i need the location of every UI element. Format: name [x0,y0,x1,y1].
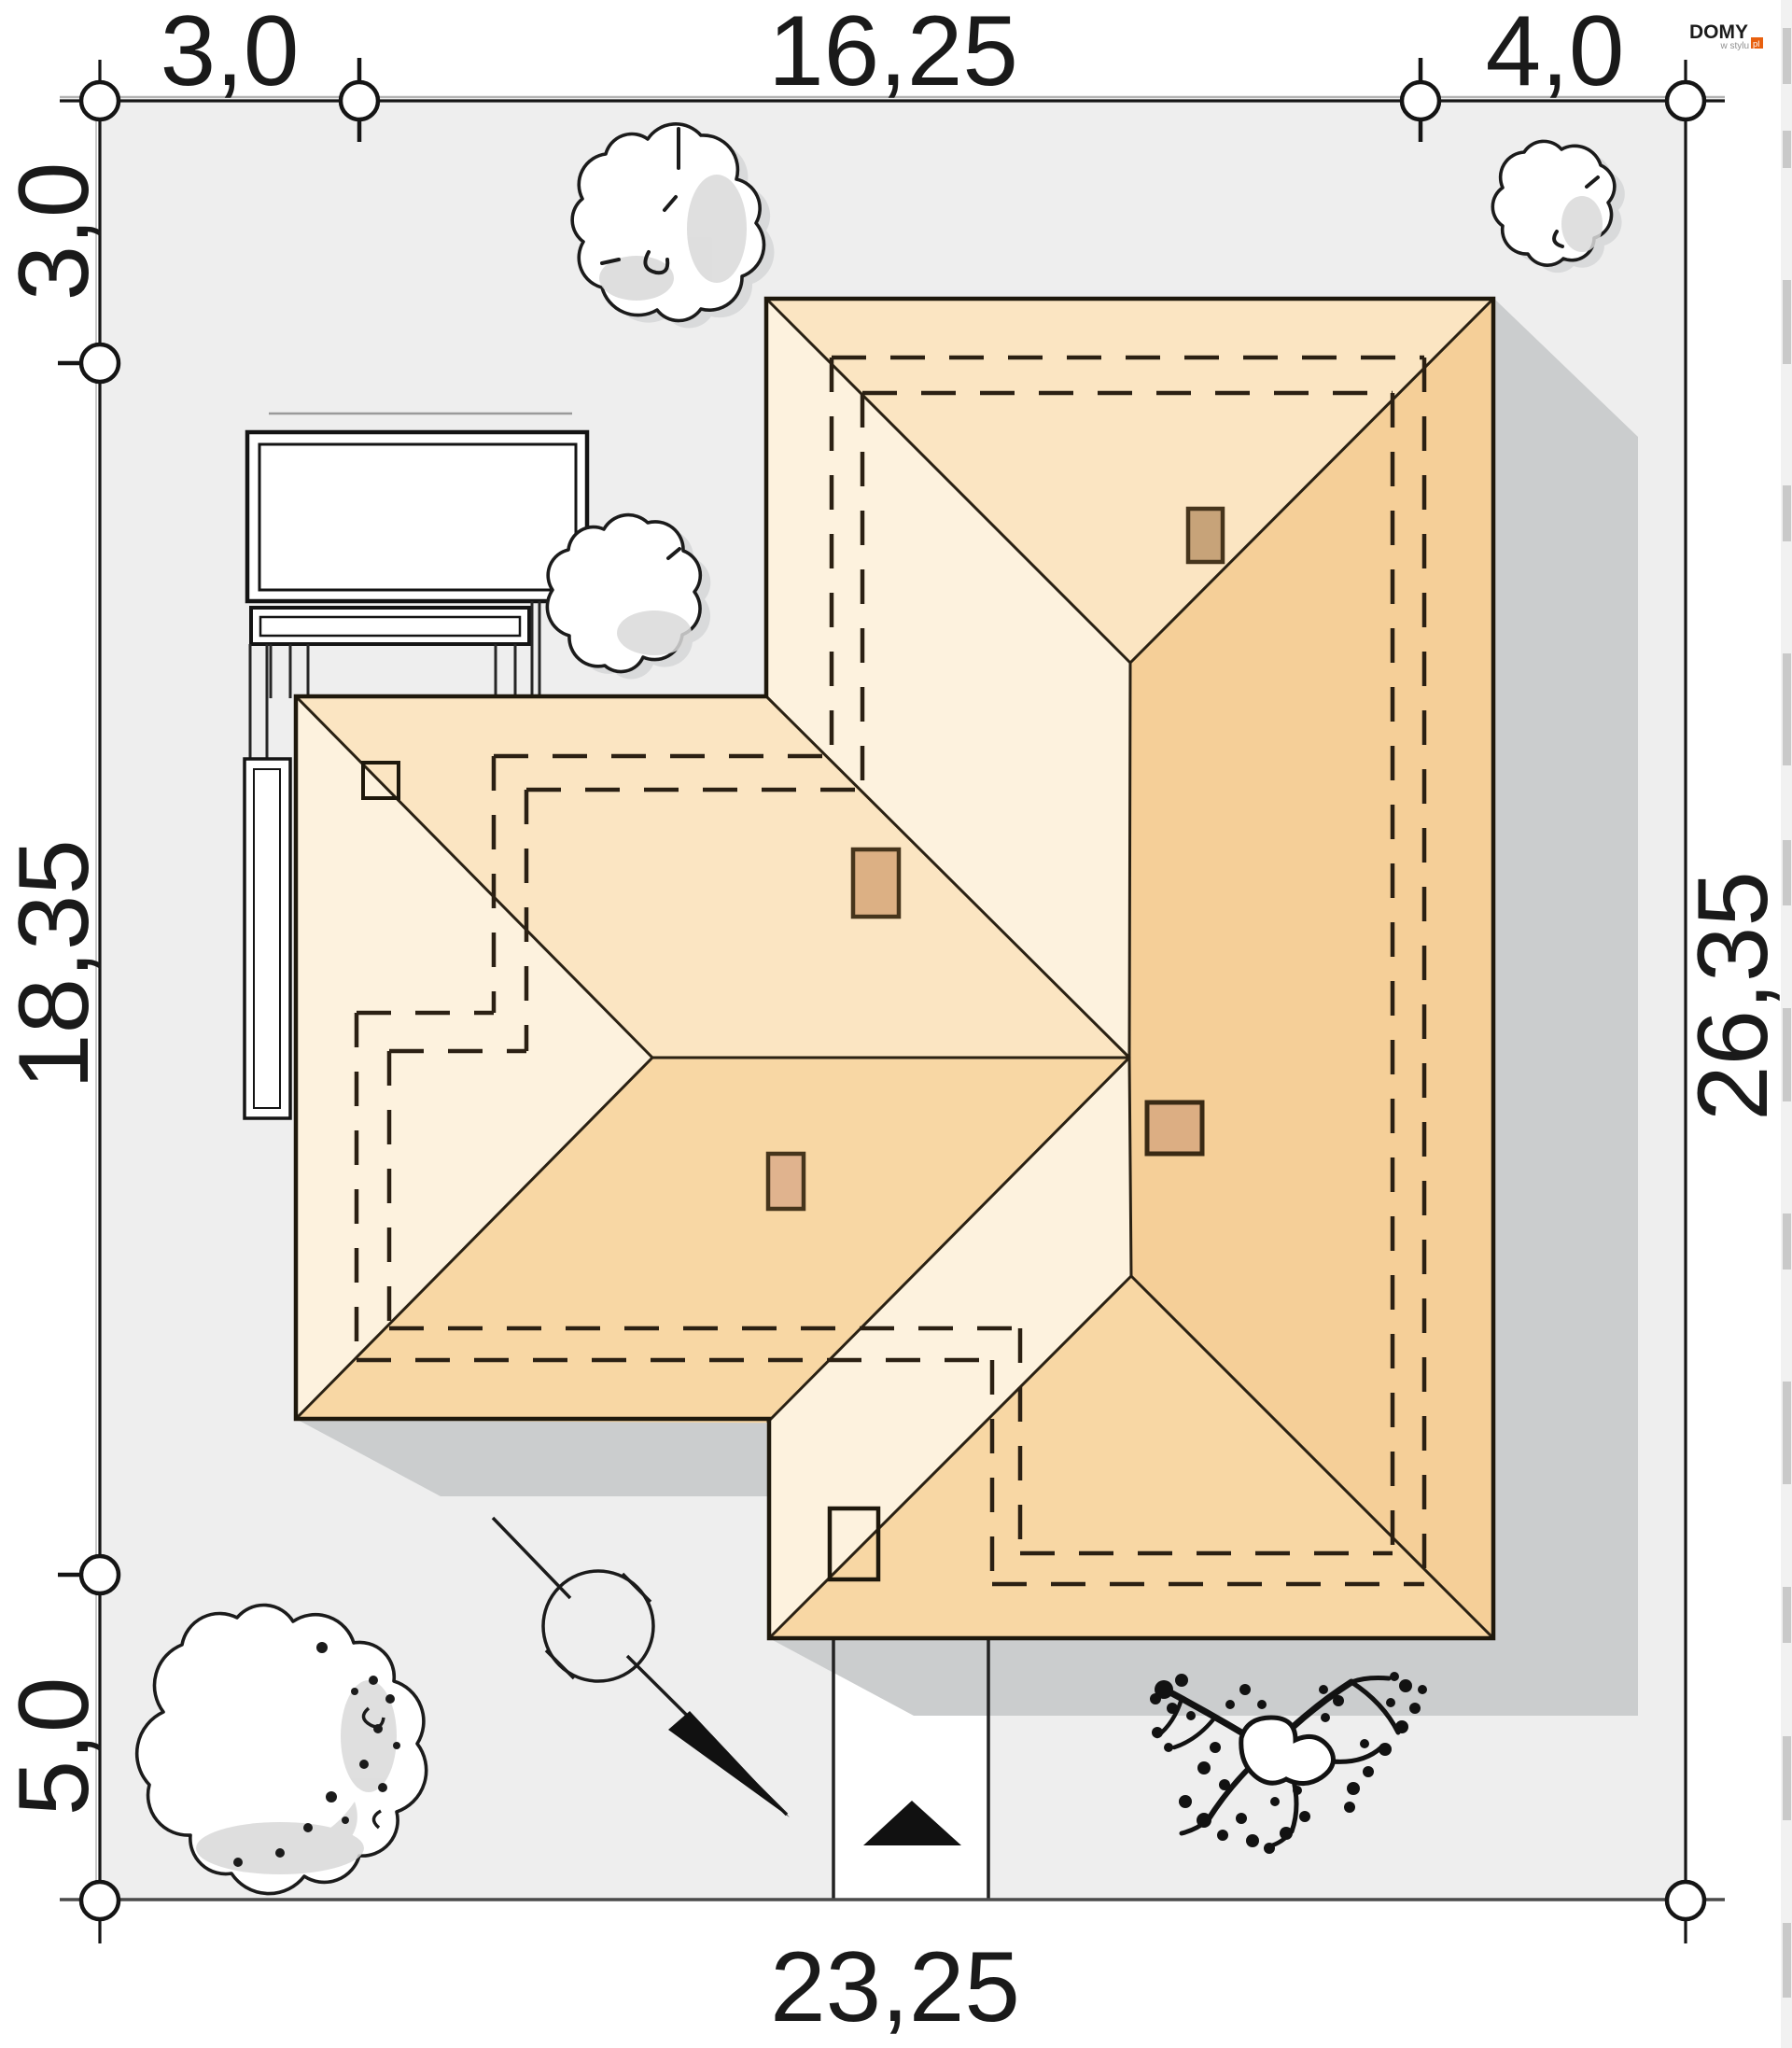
svg-text:18,35: 18,35 [0,839,109,1089]
svg-text:3,0: 3,0 [0,162,109,302]
svg-text:w stylu: w stylu [1719,41,1749,51]
svg-text:3,0: 3,0 [161,0,300,106]
svg-text:DOMY: DOMY [1689,21,1748,43]
svg-text:26,35: 26,35 [1676,871,1788,1121]
svg-text:23,25: 23,25 [770,1930,1020,2042]
svg-text:pl: pl [1753,39,1759,49]
svg-text:5,0: 5,0 [0,1677,109,1817]
svg-text:4,0: 4,0 [1486,0,1625,106]
svg-text:16,25: 16,25 [768,0,1018,106]
